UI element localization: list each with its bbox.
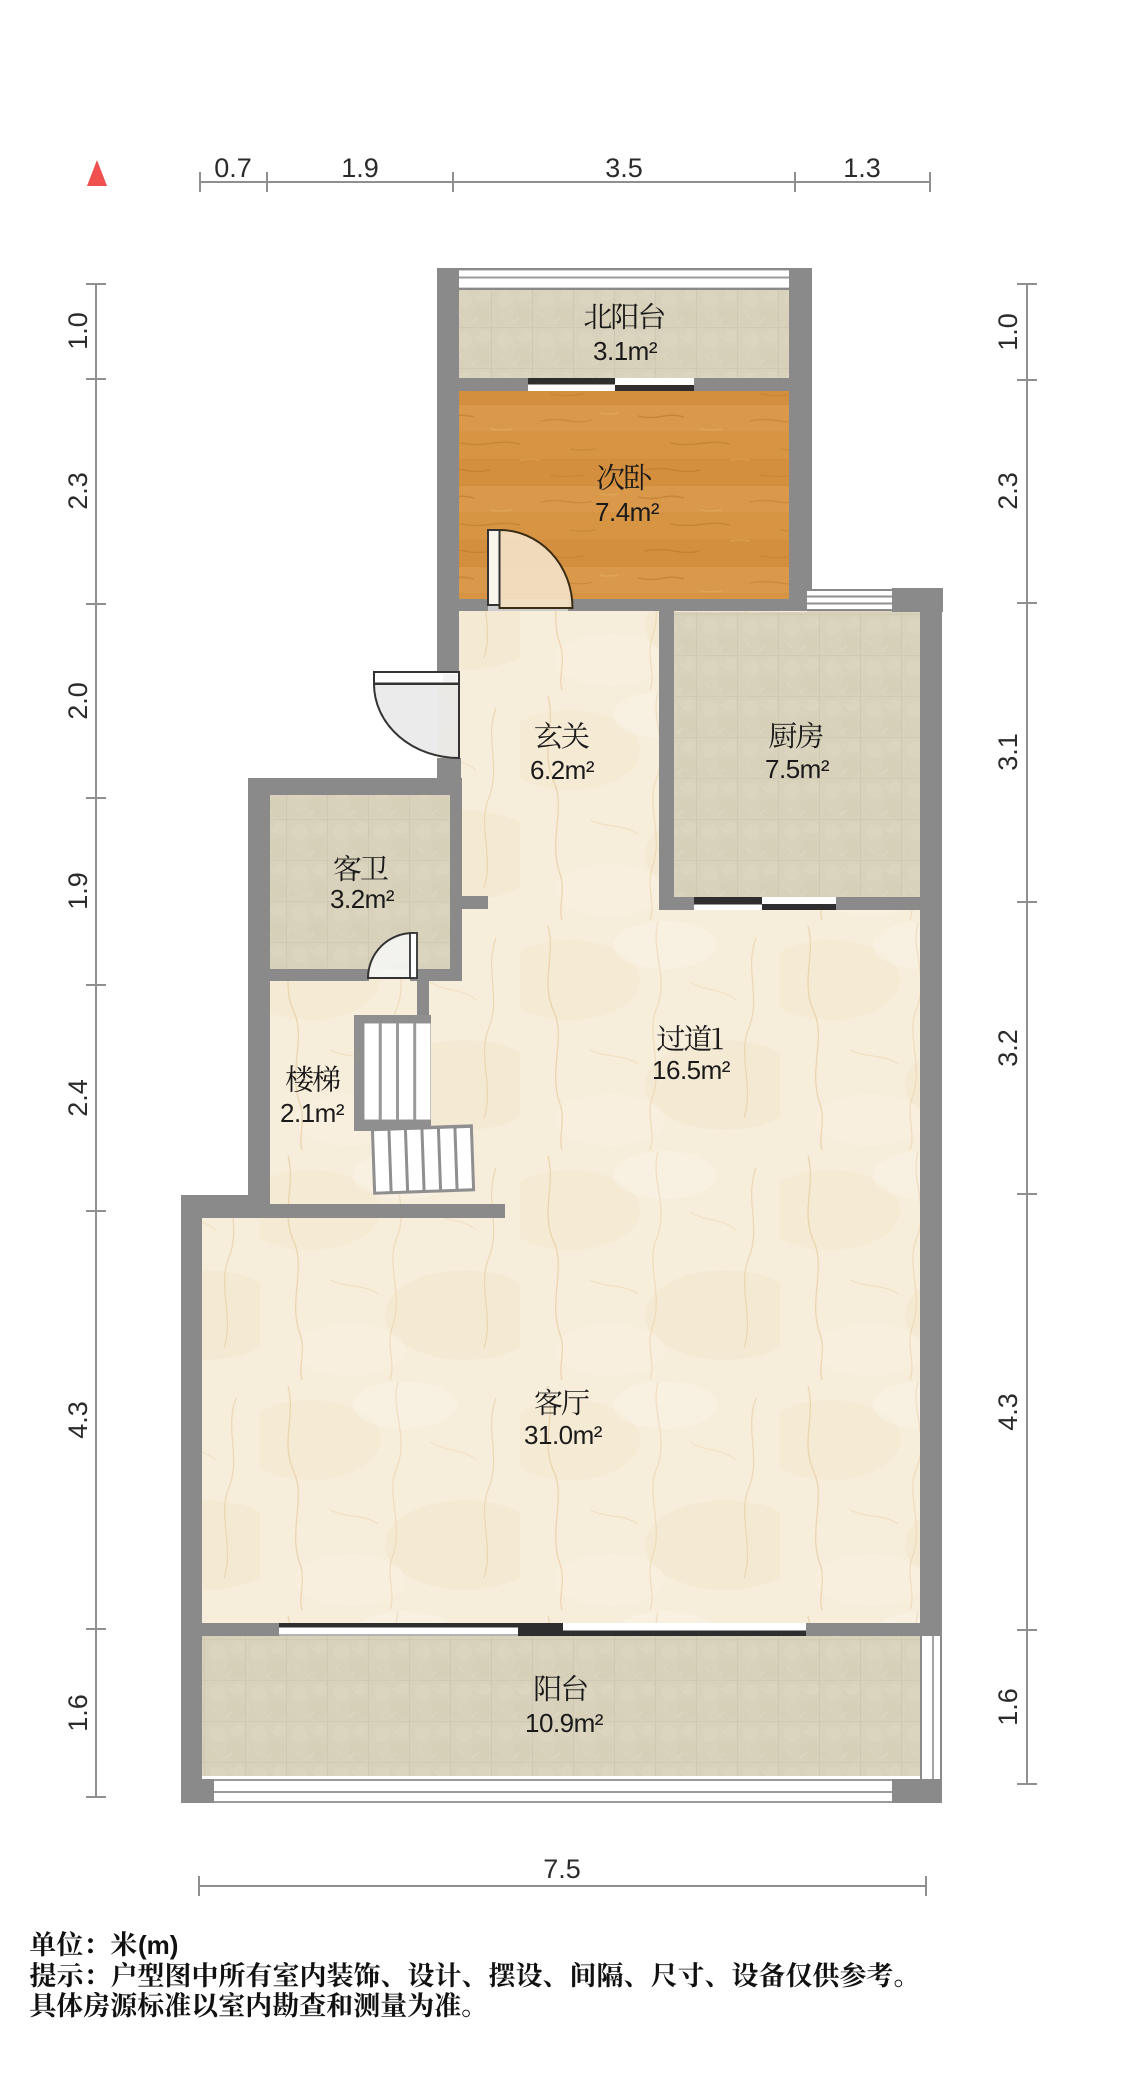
svg-text:7.5: 7.5 [543,1854,581,1884]
svg-text:1.6: 1.6 [63,1694,93,1732]
svg-text:3.2: 3.2 [993,1029,1023,1067]
svg-text:31.0m²: 31.0m² [524,1420,603,1450]
svg-text:7.5m²: 7.5m² [765,754,830,784]
svg-text:7.4m²: 7.4m² [595,497,660,527]
svg-text:2.3: 2.3 [993,472,1023,510]
svg-text:3.2m²: 3.2m² [330,884,395,914]
svg-text:1.3: 1.3 [843,153,881,183]
svg-text:1.0: 1.0 [993,313,1023,351]
svg-text:4.3: 4.3 [63,1401,93,1439]
svg-text:4.3: 4.3 [993,1393,1023,1431]
svg-text:1.9: 1.9 [63,872,93,910]
svg-text:(m): (m) [138,1930,178,1960]
svg-text:10.9m²: 10.9m² [525,1708,604,1738]
svg-text:2.0: 2.0 [63,682,93,720]
svg-text:1.6: 1.6 [993,1688,1023,1726]
svg-text:2.4: 2.4 [63,1079,93,1117]
svg-text:6.2m²: 6.2m² [530,755,595,785]
svg-text:3.5: 3.5 [605,153,643,183]
svg-text:3.1: 3.1 [993,733,1023,771]
svg-text:0.7: 0.7 [214,153,252,183]
svg-text:1.0: 1.0 [63,312,93,350]
svg-text:2.1m²: 2.1m² [280,1098,345,1128]
svg-text:16.5m²: 16.5m² [652,1055,731,1085]
svg-text:2.3: 2.3 [63,472,93,510]
svg-text:3.1m²: 3.1m² [593,336,658,366]
svg-text:1.9: 1.9 [341,153,379,183]
